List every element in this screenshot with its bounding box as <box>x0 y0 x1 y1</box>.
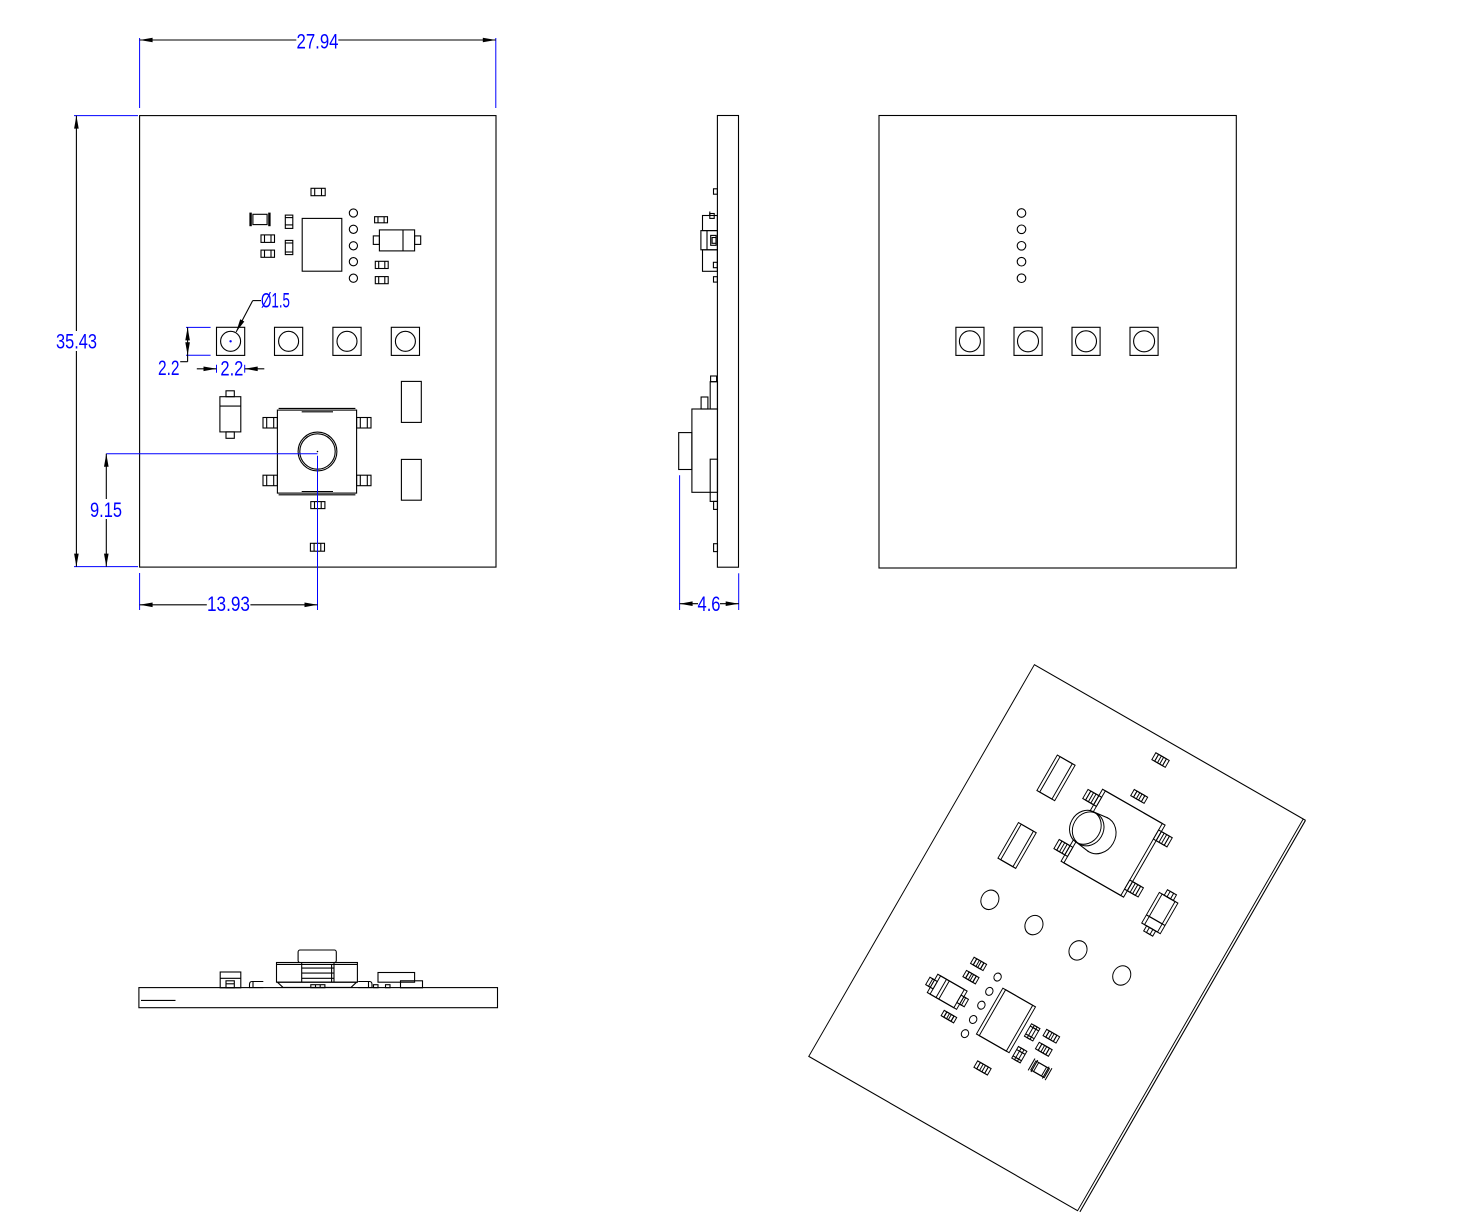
svg-text:2.2: 2.2 <box>220 358 243 381</box>
svg-text:35.43: 35.43 <box>56 331 97 354</box>
svg-text:4.6: 4.6 <box>698 593 721 616</box>
svg-text:Ø1.5: Ø1.5 <box>261 290 290 313</box>
svg-text:27.94: 27.94 <box>297 31 339 54</box>
svg-text:13.93: 13.93 <box>207 593 250 616</box>
svg-text:2.2: 2.2 <box>158 357 180 380</box>
svg-text:9.15: 9.15 <box>90 499 122 522</box>
